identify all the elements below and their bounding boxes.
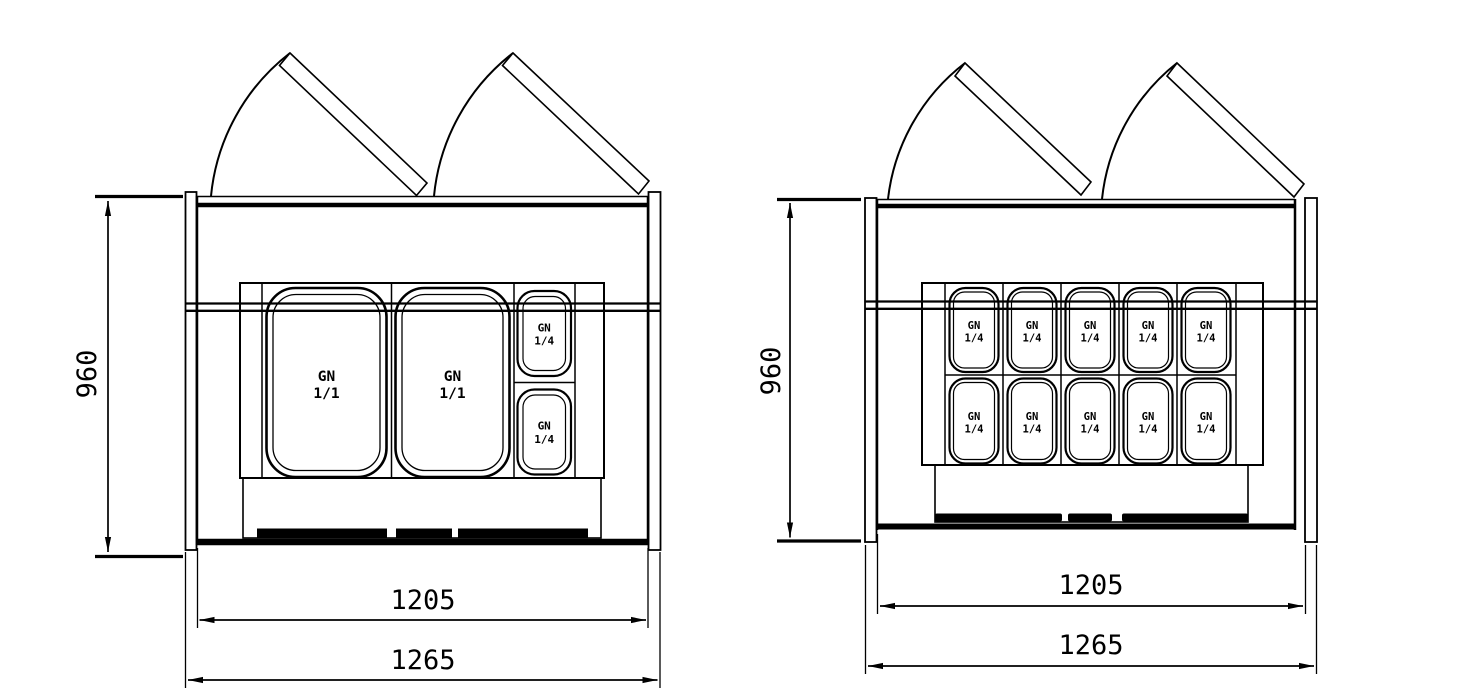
pan-label-line1: GN xyxy=(1200,411,1213,423)
side-rail-right xyxy=(649,192,661,550)
pan-label-line2: 1/4 xyxy=(1197,424,1216,436)
gn-unit-technical-drawing: GN 1/1 GN 1/1 GN 1/4 GN 1/4 960 xyxy=(0,0,1458,700)
dimension-label: 1265 xyxy=(1058,630,1123,661)
pan-label-line2: 1/1 xyxy=(439,386,465,402)
open-lid-left xyxy=(888,63,1091,199)
side-rail-left xyxy=(186,192,197,550)
pan-label-line1: GN xyxy=(968,411,981,423)
well-frame xyxy=(922,283,1263,465)
open-lid-right xyxy=(434,53,649,196)
side-rail-left xyxy=(865,198,877,542)
pan-label-line2: 1/4 xyxy=(1139,333,1158,345)
pan-label-line2: 1/4 xyxy=(1197,333,1216,345)
pan-label-line2: 1/4 xyxy=(1023,424,1042,436)
pan-label-line2: 1/4 xyxy=(965,333,984,345)
lid-band xyxy=(280,53,428,196)
pan-label-line1: GN xyxy=(968,320,981,332)
dimension-label: 1265 xyxy=(390,645,455,676)
dim-height-960: 960 xyxy=(72,197,183,557)
pan-label-line1: GN xyxy=(1026,411,1039,423)
left-view: GN 1/1 GN 1/1 GN 1/4 GN 1/4 960 xyxy=(72,53,661,688)
lid-band xyxy=(503,53,650,194)
pan-label-line1: GN xyxy=(1142,320,1155,332)
vent-grille-segment xyxy=(257,529,387,538)
pan-label-line1: GN xyxy=(1200,320,1213,332)
lid-arc xyxy=(434,53,513,196)
pan-label-line2: 1/4 xyxy=(1081,333,1100,345)
dim-outer-width-1265: 1265 xyxy=(866,545,1317,674)
pan-label-line2: 1/4 xyxy=(1139,424,1158,436)
pan-label-line2: 1/4 xyxy=(965,424,984,436)
pan-label-line2: 1/4 xyxy=(534,433,554,446)
pan-label-line1: GN xyxy=(1084,411,1097,423)
pan-label-line1: GN xyxy=(538,322,551,335)
vent-grille-segment xyxy=(1068,514,1112,522)
pan-label-line1: GN xyxy=(444,369,461,385)
lid-arc xyxy=(211,53,290,196)
right-view: GN 1/4 GN 1/4 GN 1/4 GN 1/4 GN 1/4 GN 1/… xyxy=(756,63,1317,674)
pan-label-line2: 1/1 xyxy=(313,386,339,402)
dim-inner-width-1205: 1205 xyxy=(198,548,649,628)
pan-label-line2: 1/4 xyxy=(1081,424,1100,436)
pan-label-line1: GN xyxy=(1084,320,1097,332)
well-frame xyxy=(240,283,604,478)
pan-label-line1: GN xyxy=(1026,320,1039,332)
vent-grille-segment xyxy=(1122,514,1248,522)
pan-label-line1: GN xyxy=(538,420,551,433)
drawing-canvas: GN 1/1 GN 1/1 GN 1/4 GN 1/4 960 xyxy=(0,0,1458,700)
lid-arc xyxy=(888,63,965,199)
vent-grille-segment xyxy=(458,529,588,538)
vent-grille-segment xyxy=(935,514,1062,522)
lid-band xyxy=(955,63,1091,195)
lid-arc xyxy=(1102,63,1177,199)
dimension-label: 1205 xyxy=(1058,570,1123,601)
pan-label-line2: 1/4 xyxy=(534,335,554,348)
pan-label-line1: GN xyxy=(318,369,335,385)
front-panel xyxy=(935,465,1248,522)
dimension-label: 960 xyxy=(756,347,787,396)
open-lid-left xyxy=(211,53,427,196)
dimension-label: 1205 xyxy=(390,585,455,616)
lid-band xyxy=(1167,63,1304,197)
vent-grille-segment xyxy=(396,529,452,538)
dim-inner-width-1205: 1205 xyxy=(878,534,1306,614)
open-lid-right xyxy=(1102,63,1304,199)
side-rail-right xyxy=(1305,198,1317,542)
dimension-label: 960 xyxy=(72,350,103,399)
pan-label-line1: GN xyxy=(1142,411,1155,423)
pan-label-line2: 1/4 xyxy=(1023,333,1042,345)
dim-height-960: 960 xyxy=(756,200,861,542)
